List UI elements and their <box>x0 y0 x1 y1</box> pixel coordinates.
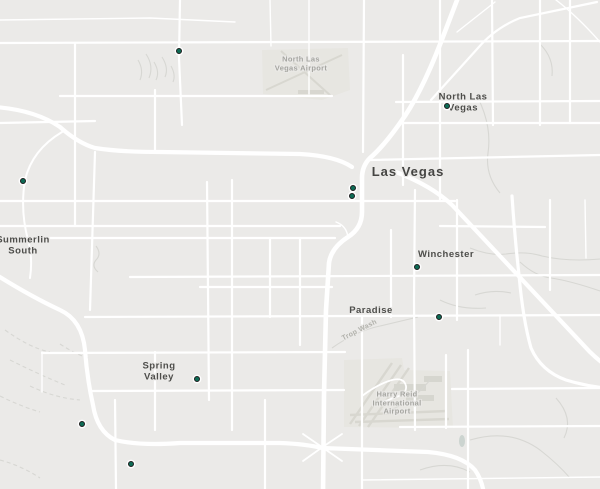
road-boulder <box>512 196 600 388</box>
map-marker-5[interactable] <box>349 193 355 199</box>
map-marker-4[interactable] <box>350 185 356 191</box>
map-marker-1[interactable] <box>176 48 182 54</box>
map-marker-10[interactable] <box>128 461 134 467</box>
map-tiles <box>0 0 600 489</box>
map-marker-6[interactable] <box>414 264 420 270</box>
map-marker-9[interactable] <box>79 421 85 427</box>
map-marker-7[interactable] <box>436 314 442 320</box>
map-canvas[interactable]: North LasVegasLas VegasSummerlinSouthWin… <box>0 0 600 489</box>
map-marker-8[interactable] <box>194 376 200 382</box>
ramp-connector <box>23 132 62 278</box>
pond <box>459 435 465 447</box>
map-marker-2[interactable] <box>444 103 450 109</box>
map-marker-3[interactable] <box>20 178 26 184</box>
